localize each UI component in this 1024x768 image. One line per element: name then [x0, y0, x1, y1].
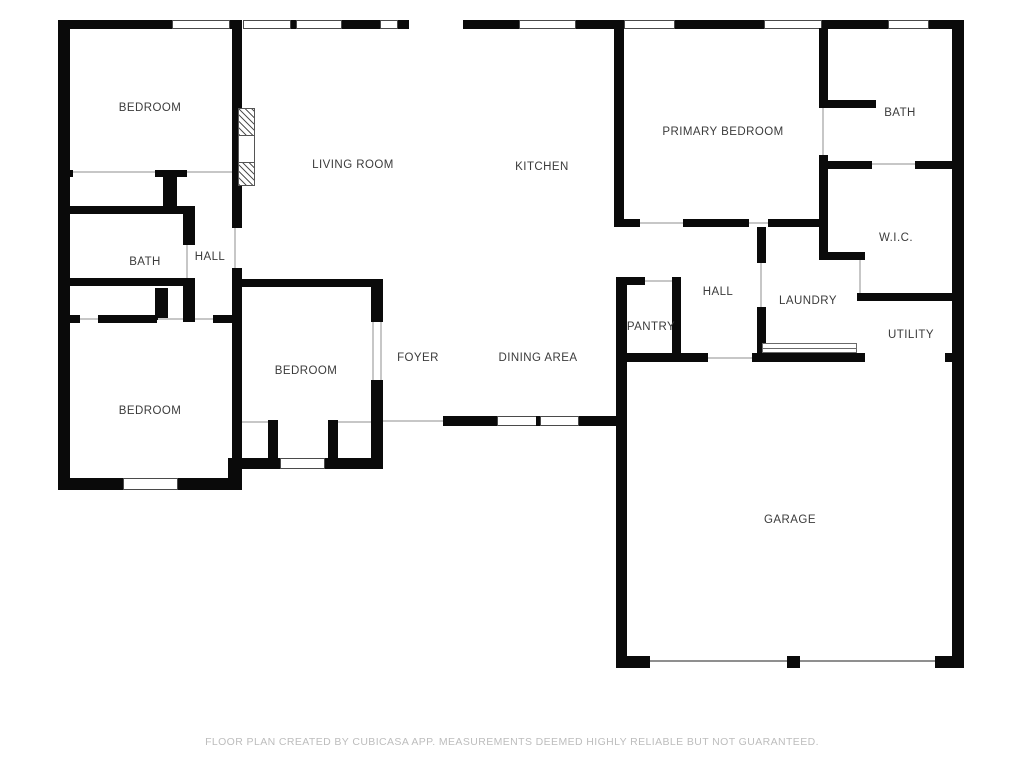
window [497, 416, 537, 426]
window [540, 416, 579, 426]
wall [64, 170, 73, 177]
window [123, 478, 178, 490]
wall [672, 277, 681, 357]
room-label-bedroom-middle: BEDROOM [275, 365, 338, 377]
wall [822, 161, 872, 169]
room-label-bath-left: BATH [129, 256, 161, 268]
window [280, 458, 325, 469]
door-opening [338, 421, 371, 423]
room-label-living-room: LIVING ROOM [312, 159, 394, 171]
wall [768, 219, 824, 227]
door-opening [234, 228, 236, 268]
wall [325, 458, 383, 469]
wall [616, 277, 627, 668]
wall [952, 20, 964, 668]
wall [58, 20, 172, 29]
wall [342, 20, 380, 29]
wall [787, 656, 800, 668]
wall [371, 279, 383, 322]
wall [58, 478, 123, 490]
room-label-wic: W.I.C. [879, 232, 913, 244]
garage-door [650, 660, 787, 662]
wall [614, 20, 624, 219]
wall [98, 315, 157, 323]
wall [915, 161, 955, 169]
window [764, 20, 822, 29]
door-opening [822, 108, 824, 155]
door-opening [186, 245, 188, 278]
door-opening [708, 357, 752, 359]
fireplace-icon [238, 108, 255, 186]
room-label-dining-area: DINING AREA [498, 352, 577, 364]
wall [232, 268, 242, 480]
wall [64, 206, 183, 214]
door-opening [859, 260, 861, 293]
sliding-door [762, 343, 857, 353]
wall [935, 656, 964, 668]
wall [819, 252, 865, 260]
floor-plan: BEDROOM LIVING ROOM KITCHEN PRIMARY BEDR… [0, 0, 1024, 768]
wall [752, 353, 865, 362]
door-opening [380, 322, 382, 380]
room-label-pantry: PANTRY [627, 321, 675, 333]
wall [64, 315, 80, 323]
room-label-kitchen: KITCHEN [515, 161, 569, 173]
door-opening [372, 322, 374, 380]
wall [819, 28, 828, 108]
room-label-bedroom-top-left: BEDROOM [119, 102, 182, 114]
wall [857, 293, 955, 301]
door-opening [80, 318, 98, 320]
room-label-utility: UTILITY [888, 329, 934, 341]
wall [822, 20, 888, 29]
wall [945, 353, 957, 362]
window [296, 20, 342, 29]
wall [822, 100, 876, 108]
door-opening [187, 171, 232, 173]
wall [183, 278, 195, 322]
wall [58, 20, 70, 490]
window [888, 20, 929, 29]
room-label-laundry: LAUNDRY [779, 295, 837, 307]
wall [371, 380, 383, 468]
wall [579, 416, 618, 426]
room-label-hall-right: HALL [703, 286, 734, 298]
wall [463, 20, 519, 29]
room-label-hall-left: HALL [195, 251, 226, 263]
wall [240, 458, 280, 469]
wall [328, 420, 338, 460]
wall [268, 420, 278, 460]
room-label-bath-primary: BATH [884, 107, 916, 119]
door-opening [760, 263, 762, 307]
wall [616, 656, 650, 668]
door-opening [749, 222, 768, 224]
door-opening [872, 163, 915, 165]
window [624, 20, 675, 29]
wall [183, 206, 195, 245]
wall [178, 478, 240, 490]
room-label-garage: GARAGE [764, 514, 816, 526]
wall [232, 279, 380, 287]
wall [398, 20, 409, 29]
window [380, 20, 398, 29]
wall [614, 219, 640, 227]
footer-disclaimer: FLOOR PLAN CREATED BY CUBICASA APP. MEAS… [0, 736, 1024, 748]
room-label-foyer: FOYER [397, 352, 439, 364]
door-opening [640, 222, 683, 224]
front-door-opening [383, 420, 443, 422]
wall [617, 277, 645, 285]
wall [819, 155, 828, 260]
door-opening [195, 318, 213, 320]
window [519, 20, 576, 29]
garage-door [800, 660, 935, 662]
door-opening [645, 280, 672, 282]
wall [64, 278, 183, 286]
wall [675, 20, 764, 29]
wall [627, 353, 708, 362]
wall [683, 219, 749, 227]
room-label-bedroom-bottom-left: BEDROOM [119, 405, 182, 417]
room-label-primary-bedroom: PRIMARY BEDROOM [662, 126, 783, 138]
door-opening [242, 421, 268, 423]
wall [757, 227, 766, 263]
door-opening [158, 318, 183, 320]
wall [443, 416, 497, 426]
window [243, 20, 291, 29]
door-opening [73, 171, 155, 173]
window [172, 20, 230, 29]
